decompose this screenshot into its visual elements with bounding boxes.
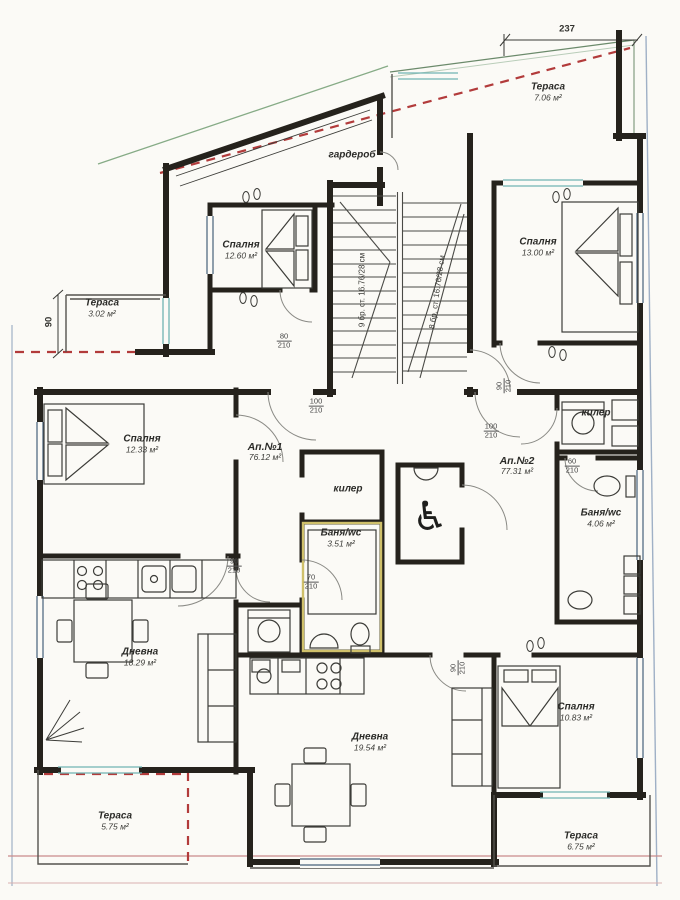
accessible-wc-fixtures: [414, 468, 438, 480]
bed-top-right: [562, 202, 638, 332]
plant: [46, 700, 84, 742]
door-size-label-bath-right: 60210: [565, 458, 580, 475]
wardrobe-interior: [176, 110, 372, 186]
door-size-label-wardrobe: 80210: [277, 333, 292, 350]
apartment-1-label: Ап.№176.12 м²: [248, 441, 283, 463]
room-label-bedroom-mid-left: Спалня12.33 м²: [123, 433, 160, 454]
slippers: [240, 189, 570, 652]
room-label-terrace-bottom-left: Тераса5.75 м²: [98, 810, 132, 831]
room-label-closet-center: килер: [334, 483, 363, 495]
floor-plan-page: Тераса7.06 м² гардероб Спалня12.60 м² Сп…: [0, 0, 680, 900]
room-label-living-bottom: Дневна19.54 м²: [352, 731, 388, 752]
floor-plan-drawing: [0, 0, 680, 900]
door-size-label-apt1-entry: 100210: [309, 398, 324, 415]
room-label-bath-right: Баня/wc4.06 м²: [581, 507, 622, 528]
door-size-label-stair-right: 90210: [496, 379, 513, 394]
setback-dashed-lines: [15, 48, 630, 862]
door-size-label-apt2-entry: 100210: [484, 423, 499, 440]
apartment-2-label: Ап.№277.31 м²: [500, 455, 535, 477]
stairs: [333, 192, 467, 384]
room-label-closet-right: килер: [582, 407, 611, 419]
door-size-label-bath-center: 70210: [304, 574, 319, 591]
bed-top-left: [262, 210, 312, 288]
room-label-terrace-top-right: Тераса7.06 м²: [531, 81, 565, 102]
bath-right-fixtures: [568, 476, 640, 614]
room-label-terrace-bottom-right: Тераса6.75 м²: [564, 830, 598, 851]
door-arcs: [178, 152, 598, 691]
door-size-label-bedroom-ml: 90210: [227, 558, 242, 575]
kitchen-bottom: [250, 658, 364, 694]
room-label-bedroom-bottom-right: Спалня10.83 м²: [557, 701, 594, 722]
sofa-bottom: [452, 688, 492, 786]
washing-machine-center: [248, 610, 290, 652]
room-label-terrace-left: Тераса3.02 м²: [85, 297, 119, 318]
door-size-label-living-bottom: 90210: [450, 661, 467, 676]
dimension-left-height: 90: [44, 317, 55, 328]
room-label-living-left: Дневна18.29 м²: [122, 646, 158, 667]
sofa-left: [198, 634, 236, 742]
room-label-bath-center: Баня/wc3.51 м²: [321, 527, 362, 548]
dining-table-bottom: [275, 748, 366, 842]
room-label-bedroom-top-left: Спалня12.60 м²: [222, 239, 259, 260]
dimension-top-width: 237: [559, 24, 575, 35]
bed-bottom-right: [498, 666, 560, 788]
kitchen-left: [42, 560, 236, 598]
room-label-bedroom-top-right: Спалня13.00 м²: [519, 236, 556, 257]
wheelchair-icon: ♿: [412, 494, 448, 540]
room-label-wardrobe: гардероб: [328, 149, 375, 161]
furniture: [42, 110, 640, 842]
stair-flight-left-label: 9 бр. ст. 16.76/28 см: [358, 253, 367, 327]
